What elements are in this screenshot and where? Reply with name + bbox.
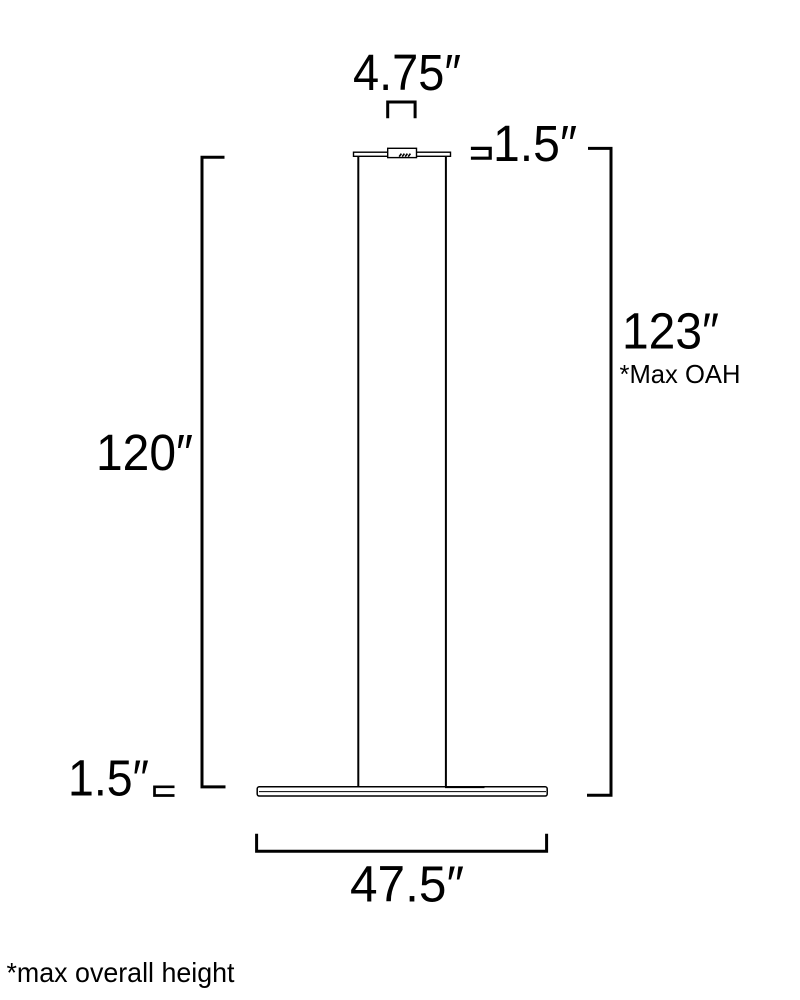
svg-text:47.5″: 47.5″ xyxy=(350,856,464,913)
svg-text:120″: 120″ xyxy=(96,424,193,481)
svg-text:*Max OAH: *Max OAH xyxy=(620,359,741,389)
svg-text:4.75″: 4.75″ xyxy=(353,44,461,101)
svg-text:*max overall height: *max overall height xyxy=(7,957,235,988)
svg-text:123″: 123″ xyxy=(622,303,719,360)
svg-text:1.5″: 1.5″ xyxy=(68,750,149,807)
svg-text:1.5″: 1.5″ xyxy=(493,115,577,172)
